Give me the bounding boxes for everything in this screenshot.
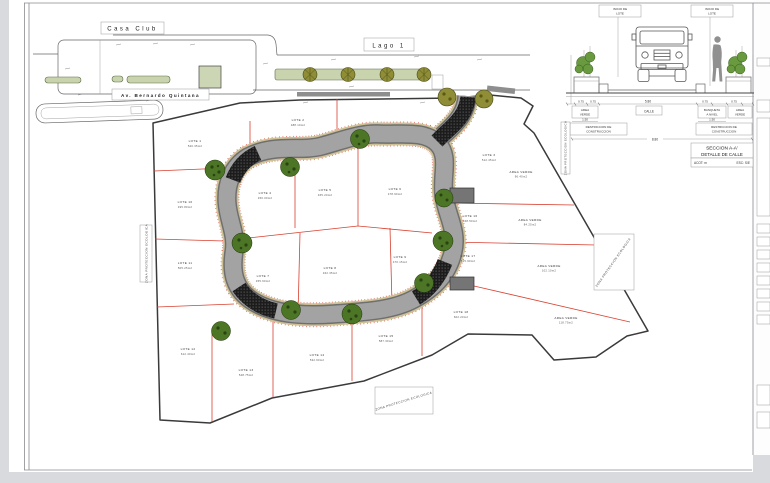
eco-zone-label-left: ZONA PROTECCION ECOLOGICA [145, 223, 149, 283]
casa-club-label: Casa Club [107, 27, 158, 33]
lot-area-label: 505.25m2 [178, 266, 193, 270]
tree-icon [303, 68, 317, 82]
bush-icon [727, 65, 735, 73]
lot-label: LOTE 13 [239, 368, 254, 372]
tree-icon [415, 274, 434, 293]
lot-area-label: 478.90m2 [388, 192, 403, 196]
svg-text:AREA: AREA [736, 108, 744, 112]
lot-area-label: 495.80m2 [178, 205, 193, 209]
lot-area-label: 612.40m2 [181, 352, 196, 356]
bush-icon [735, 64, 745, 74]
lot-label: LOTE 8 [324, 266, 337, 270]
acot-note: ACOT: m [694, 161, 707, 165]
lot-area-label: 548.75m2 [239, 373, 254, 377]
tree-icon [433, 231, 453, 251]
svg-text:5.80: 5.80 [645, 100, 651, 104]
svg-text:RESTRICCION DE: RESTRICCION DE [711, 125, 737, 129]
svg-text:0.75: 0.75 [578, 100, 584, 104]
lot-area-label: 470.15m2 [393, 260, 408, 264]
blueprint-canvas: Casa Club Av. Bernardo Quintana Lago 1 Z… [0, 0, 770, 483]
green-area-size-label: 96.40m2 [515, 175, 528, 179]
lake-label: Lago 1 [372, 44, 405, 50]
sidewalk [297, 92, 390, 97]
section-title: SECCION A-A' [706, 146, 738, 152]
green-area-size-label: 102.10m2 [542, 269, 557, 273]
bush-icon [585, 52, 595, 62]
lot-label: LOTE 10 [178, 200, 193, 204]
tree-icon [341, 68, 355, 82]
avenue-label: Av. Bernardo Quintana [121, 93, 200, 98]
svg-text:0.75: 0.75 [702, 100, 708, 104]
svg-text:CALLE: CALLE [644, 109, 654, 113]
bush-icon [575, 65, 583, 73]
inicio-lote-label: LOTE [708, 11, 716, 15]
tree-icon [417, 68, 431, 82]
svg-text:1.50: 1.50 [709, 118, 715, 122]
site-plan-drawing: Casa Club Av. Bernardo Quintana Lago 1 Z… [0, 0, 770, 483]
tree-icon [282, 301, 301, 320]
lot-label: LOTE 12 [181, 347, 196, 351]
svg-text:AREA: AREA [581, 108, 589, 112]
inicio-lote-label: LOTE [616, 11, 624, 15]
lot-label: LOTE 6 [389, 187, 402, 191]
lot-area-label: 512.45m2 [482, 158, 497, 162]
median-strip [45, 77, 81, 83]
lot-area-label: 488.10m2 [291, 123, 306, 127]
tree-icon [342, 304, 362, 324]
median-strip [112, 76, 123, 82]
tree-icon [205, 160, 225, 180]
lot-label: LOTE 18 [454, 310, 469, 314]
tree-icon [212, 322, 231, 341]
svg-text:RESTRICCION DE: RESTRICCION DE [586, 125, 612, 129]
lot-area-label: 602.20m2 [454, 315, 469, 319]
svg-text:0.75: 0.75 [731, 100, 737, 104]
lot-label: LOTE 2 [292, 118, 305, 122]
tree-icon [435, 189, 453, 207]
lot-area-label: 468.50m2 [463, 219, 478, 223]
lot-label: LOTE 7 [257, 274, 270, 278]
lot-label: LOTE 9 [394, 255, 407, 259]
svg-text:1.50: 1.50 [582, 118, 588, 122]
lot-area-label: 455.60m2 [256, 279, 271, 283]
bush-icon [583, 64, 593, 74]
svg-text:A NIVEL: A NIVEL [706, 113, 718, 117]
tree-icon [438, 88, 456, 106]
svg-text:VERDE: VERDE [580, 113, 590, 117]
svg-text:BANQUETA: BANQUETA [704, 108, 720, 112]
lot-area-label: 520.35m2 [188, 144, 203, 148]
lot-area-label: 532.60m2 [310, 358, 325, 362]
lot-area-label: 462.35m2 [323, 271, 338, 275]
service-pad [450, 277, 474, 290]
tree-icon [281, 158, 300, 177]
lot-label: LOTE 11 [178, 261, 193, 265]
bush-icon [737, 52, 747, 62]
tree-icon [380, 68, 394, 82]
svg-text:VERDE: VERDE [735, 113, 745, 117]
eco-zone-label-section: ZONA PROTECCION ECOLOGICA [564, 121, 568, 175]
green-area-label: AREA VERDE [518, 218, 541, 222]
lot-label: LOTE 15 [379, 334, 394, 338]
green-area-label: AREA VERDE [554, 316, 577, 320]
section-title-block: SECCION A-A' DETALLE DE CALLE ACOT: m ES… [691, 143, 753, 167]
scale-note: ESC: S/E [737, 161, 750, 165]
lot-label: LOTE 1 [189, 139, 202, 143]
svg-text:8.80: 8.80 [652, 137, 658, 141]
section-subtitle: DETALLE DE CALLE [701, 152, 743, 157]
lot-label: LOTE 3 [483, 153, 496, 157]
svg-text:CONSTRUCCION: CONSTRUCCION [586, 130, 611, 134]
tree-icon [351, 130, 370, 149]
lot-label: LOTE 14 [310, 353, 325, 357]
lot-label: LOTE 4 [259, 191, 272, 195]
tree-icon [475, 90, 493, 108]
green-area-label: AREA VERDE [509, 170, 532, 174]
lot-area-label: 515.90m2 [461, 259, 476, 263]
lot-label: LOTE 17 [461, 254, 476, 258]
green-area-label: AREA VERDE [537, 264, 560, 268]
lot-area-label: 587.30m2 [379, 339, 394, 343]
lot-area-label: 450.00m2 [258, 196, 273, 200]
green-area-size-label: 84.25m2 [524, 223, 537, 227]
service-pad [450, 188, 474, 203]
green-area-size-label: 118.75m2 [559, 321, 573, 325]
svg-text:CONSTRUCCION: CONSTRUCCION [712, 130, 737, 134]
lot-label: LOTE 5 [319, 188, 332, 192]
tree-icon [232, 233, 252, 253]
svg-text:0.75: 0.75 [590, 100, 596, 104]
lot-label: LOTE 16 [463, 214, 478, 218]
median-strip [127, 76, 170, 83]
lot-area-label: 465.20m2 [318, 193, 333, 197]
